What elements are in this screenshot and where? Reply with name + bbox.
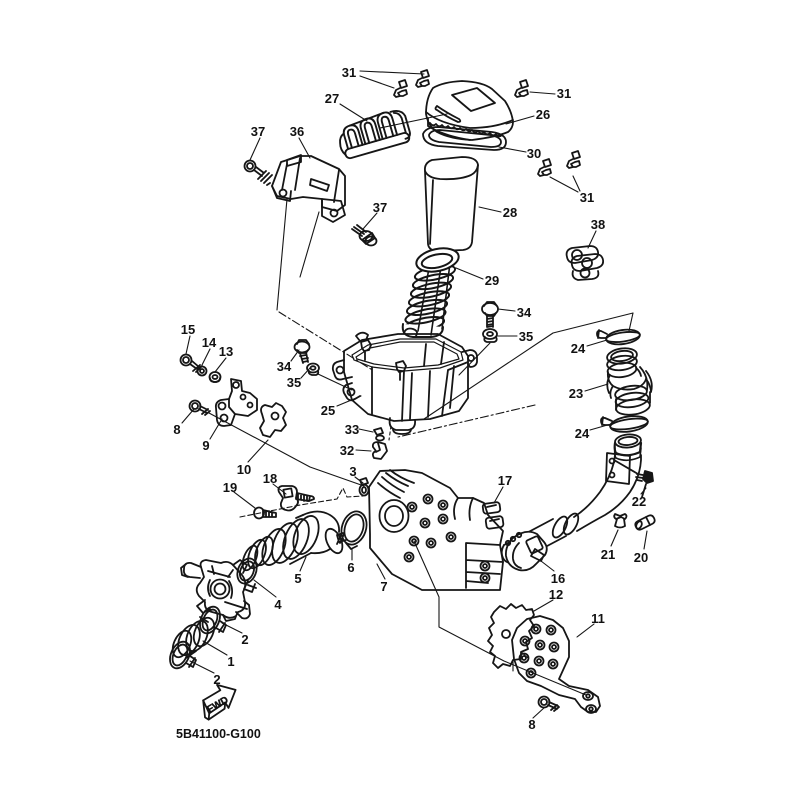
svg-text:31: 31 [557,86,571,101]
svg-text:7: 7 [380,579,387,594]
svg-text:34: 34 [277,359,292,374]
svg-text:29: 29 [485,273,499,288]
svg-text:37: 37 [373,200,387,215]
svg-text:8: 8 [528,717,535,732]
svg-text:10: 10 [237,462,251,477]
svg-text:9: 9 [202,438,209,453]
svg-text:17: 17 [498,473,512,488]
svg-text:23: 23 [569,386,583,401]
svg-text:35: 35 [519,329,533,344]
svg-text:12: 12 [549,587,563,602]
svg-text:13: 13 [219,344,233,359]
svg-text:34: 34 [517,305,532,320]
svg-text:21: 21 [601,547,615,562]
svg-text:24: 24 [571,341,586,356]
svg-text:26: 26 [536,107,550,122]
svg-text:38: 38 [591,217,605,232]
svg-text:24: 24 [575,426,590,441]
svg-text:33: 33 [345,422,359,437]
svg-text:31: 31 [342,65,356,80]
svg-text:22: 22 [632,494,646,509]
svg-text:18: 18 [263,471,277,486]
svg-text:19: 19 [223,480,237,495]
svg-text:1: 1 [227,654,234,669]
svg-text:28: 28 [503,205,517,220]
svg-text:32: 32 [340,443,354,458]
svg-text:27: 27 [325,91,339,106]
svg-text:4: 4 [274,597,282,612]
svg-text:15: 15 [181,322,195,337]
svg-text:31: 31 [580,190,594,205]
svg-text:2: 2 [241,632,248,647]
svg-text:37: 37 [251,124,265,139]
svg-text:20: 20 [634,550,648,565]
svg-text:14: 14 [202,335,217,350]
svg-text:8: 8 [173,422,180,437]
svg-text:2: 2 [213,672,220,687]
svg-text:5: 5 [294,571,301,586]
svg-text:36: 36 [290,124,304,139]
svg-text:3: 3 [349,464,356,479]
svg-text:6: 6 [347,560,354,575]
svg-text:16: 16 [551,571,565,586]
svg-text:25: 25 [321,403,335,418]
svg-text:11: 11 [591,611,605,626]
svg-text:5B41100-G100: 5B41100-G100 [176,727,261,741]
svg-text:30: 30 [527,146,541,161]
svg-text:35: 35 [287,375,301,390]
